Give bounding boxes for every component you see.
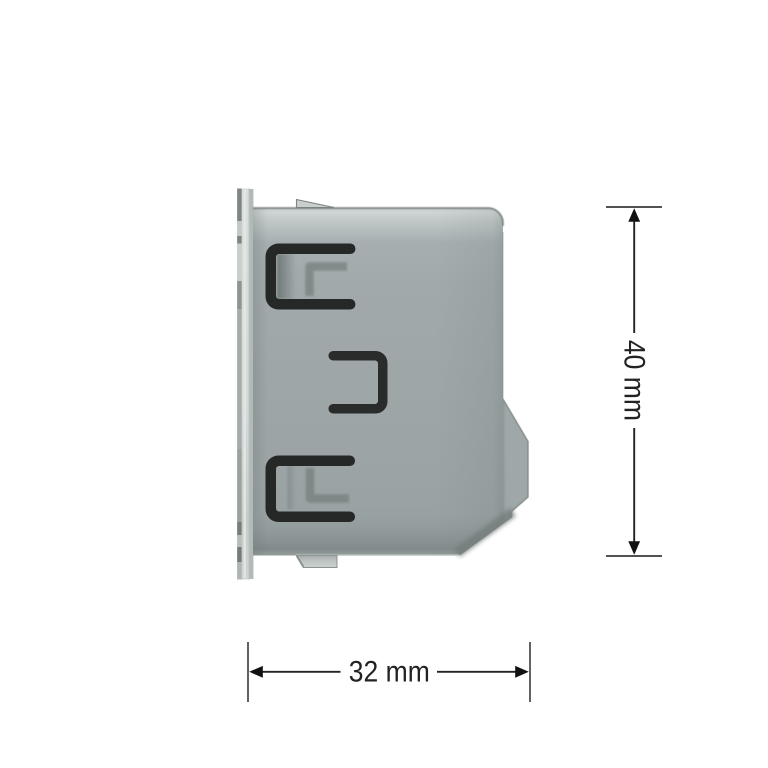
- svg-text:32 mm: 32 mm: [349, 655, 430, 688]
- svg-text:40 mm: 40 mm: [617, 340, 650, 421]
